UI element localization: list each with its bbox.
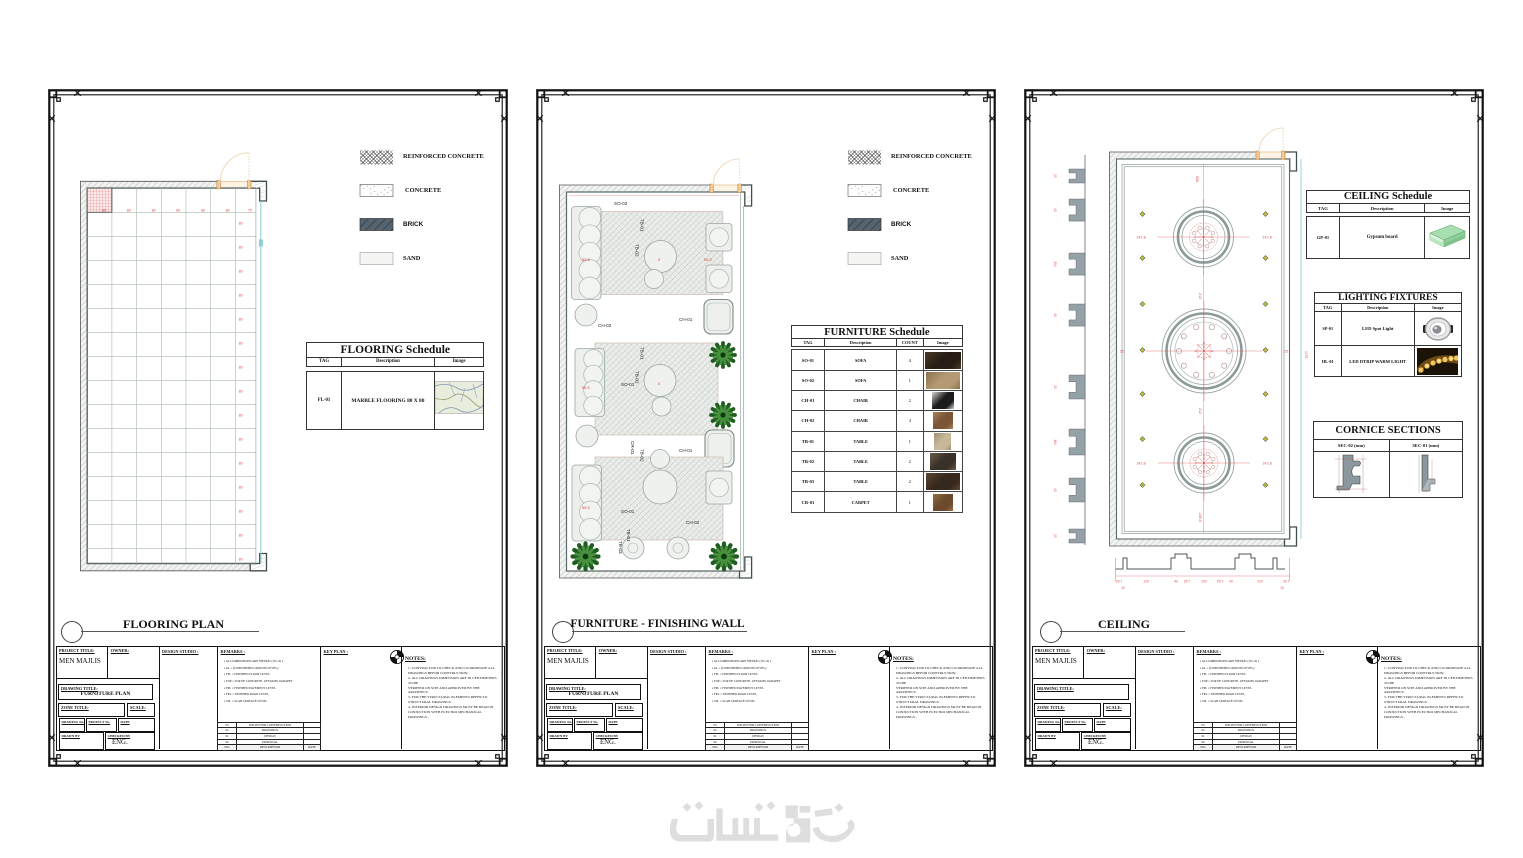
svg-text:25.7: 25.7 <box>1283 580 1290 584</box>
svg-text:75: 75 <box>248 209 252 213</box>
svg-text:80: 80 <box>176 209 180 213</box>
svg-text:142.8: 142.8 <box>1136 462 1146 466</box>
svg-text:56.5: 56.5 <box>582 385 591 390</box>
svg-text:212: 212 <box>1198 293 1202 299</box>
svg-text:25: 25 <box>1053 534 1057 538</box>
svg-text:SO-02: SO-02 <box>614 201 628 206</box>
svg-text:120: 120 <box>1257 580 1263 584</box>
svg-text:SO-01: SO-01 <box>621 382 635 387</box>
svg-text:56.5: 56.5 <box>704 257 713 262</box>
svg-text:40: 40 <box>1053 313 1057 317</box>
svg-text:10: 10 <box>1121 586 1125 590</box>
svg-text:80: 80 <box>152 209 156 213</box>
svg-text:80: 80 <box>239 341 243 345</box>
svg-text:142.8: 142.8 <box>1262 462 1272 466</box>
svg-text:25: 25 <box>1053 385 1057 389</box>
svg-text:80: 80 <box>239 245 243 249</box>
svg-text:CH-01: CH-01 <box>679 317 693 322</box>
svg-text:25.7: 25.7 <box>1116 580 1123 584</box>
svg-text:80: 80 <box>127 209 131 213</box>
svg-text:40: 40 <box>1053 208 1057 212</box>
svg-text:25.7: 25.7 <box>1217 580 1224 584</box>
svg-text:TB-01: TB-01 <box>640 219 645 232</box>
svg-text:80: 80 <box>239 533 243 537</box>
svg-text:CH-01: CH-01 <box>679 448 693 453</box>
svg-text:25: 25 <box>1120 350 1124 354</box>
svg-text:25: 25 <box>1053 174 1057 178</box>
svg-text:80: 80 <box>239 221 243 225</box>
svg-text:10: 10 <box>1280 586 1284 590</box>
svg-text:304: 304 <box>1053 261 1057 267</box>
svg-text:TB-02: TB-02 <box>635 371 640 384</box>
svg-text:25.7: 25.7 <box>1184 580 1191 584</box>
svg-text:CH-02: CH-02 <box>686 520 700 525</box>
svg-text:56.5: 56.5 <box>582 505 591 510</box>
svg-text:80: 80 <box>239 269 243 273</box>
svg-text:TB-03: TB-03 <box>618 541 623 554</box>
svg-text:80: 80 <box>201 209 205 213</box>
svg-text:80: 80 <box>239 557 243 561</box>
svg-text:80: 80 <box>226 209 230 213</box>
svg-text:80: 80 <box>239 389 243 393</box>
svg-text:80: 80 <box>239 509 243 513</box>
svg-text:80: 80 <box>239 293 243 297</box>
svg-text:80: 80 <box>239 437 243 441</box>
svg-text:100: 100 <box>1201 580 1207 584</box>
svg-text:80: 80 <box>239 485 243 489</box>
svg-text:508: 508 <box>1195 176 1199 182</box>
svg-text:138.5: 138.5 <box>1198 512 1202 522</box>
svg-text:CR-01: CR-01 <box>630 441 635 455</box>
svg-text:364: 364 <box>1053 439 1057 445</box>
svg-text:80: 80 <box>239 317 243 321</box>
svg-text:1175: 1175 <box>1304 351 1308 358</box>
svg-text:142.8: 142.8 <box>1262 236 1272 240</box>
svg-text:40: 40 <box>1229 580 1233 584</box>
svg-text:40: 40 <box>1053 488 1057 492</box>
svg-text:TB-01: TB-01 <box>640 347 645 360</box>
svg-text:212: 212 <box>1198 408 1202 414</box>
svg-text:80: 80 <box>102 209 106 213</box>
svg-text:80: 80 <box>239 461 243 465</box>
svg-text:120: 120 <box>1143 580 1149 584</box>
svg-text:TB-02: TB-02 <box>640 449 645 462</box>
svg-text:80: 80 <box>239 365 243 369</box>
svg-text:56.5: 56.5 <box>582 257 591 262</box>
svg-text:CH-02: CH-02 <box>598 323 612 328</box>
svg-text:80: 80 <box>239 413 243 417</box>
svg-text:TB-01: TB-01 <box>626 529 631 542</box>
svg-text:142.8: 142.8 <box>1136 236 1146 240</box>
svg-text:25: 25 <box>1284 350 1288 354</box>
svg-text:TB-02: TB-02 <box>635 244 640 257</box>
svg-text:SO-01: SO-01 <box>621 509 635 514</box>
svg-text:40: 40 <box>1174 580 1178 584</box>
